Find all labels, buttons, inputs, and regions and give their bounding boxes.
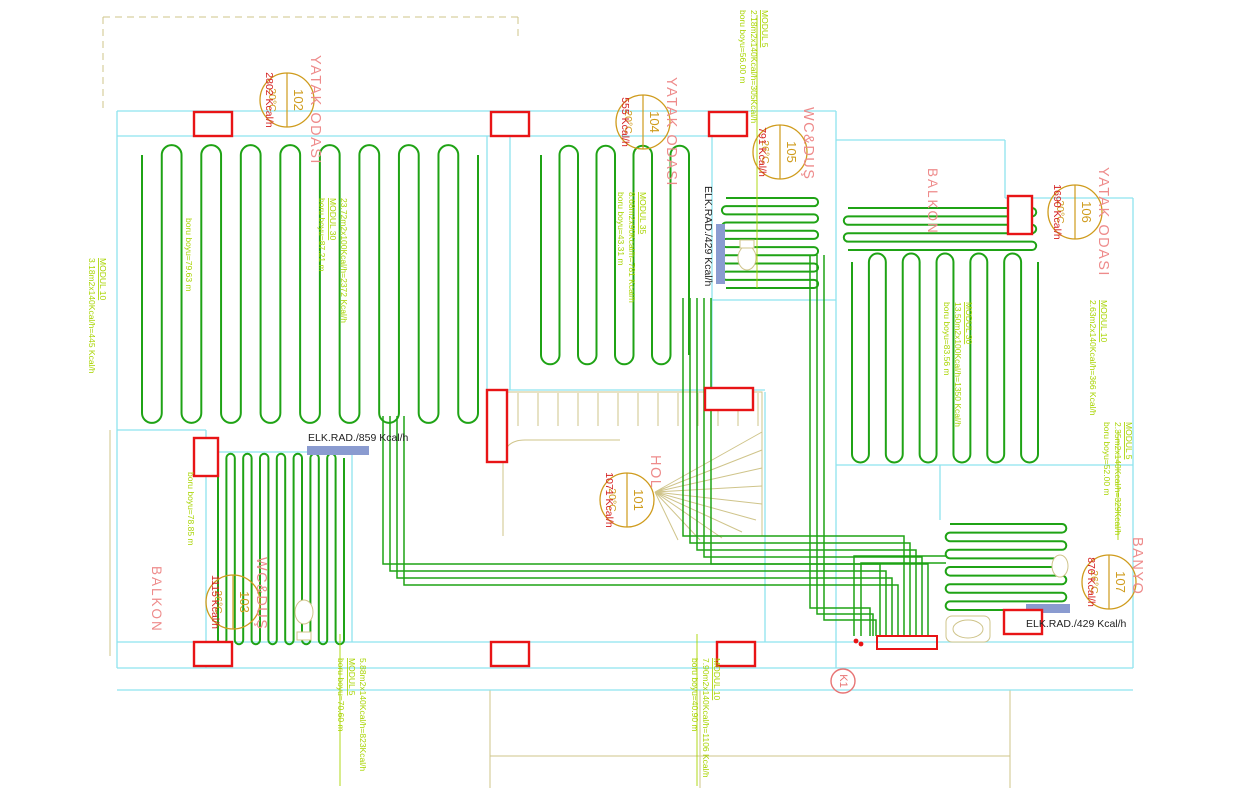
module-annotation-line: MODUL 10	[1099, 300, 1109, 342]
module-annotation-line: MODUL 30	[328, 198, 338, 240]
room-number: 103	[237, 591, 252, 613]
elk-rad-label: ELK.RAD./859 Kcal/h	[308, 432, 409, 444]
room-tag-104: 10420°CYATAK ODASI555 Kcal/h	[616, 77, 679, 187]
bathtub-basin	[953, 620, 983, 638]
room-number: 102	[291, 89, 306, 111]
balcony-label: BALKON	[925, 168, 940, 235]
module-annotation: MODUL 52.35m2x140Kcal/h=329Kcal/hboru bo…	[1102, 422, 1134, 540]
room-number: 104	[647, 111, 662, 133]
module-annotation-line: 5.88m2x140Kcal/h=823Kcal/h	[358, 658, 368, 771]
room-load: 1690 Kcal/h	[1051, 184, 1063, 240]
module-annotation: MODUL 102.63m2x140Kcal/h=366 Kcal/h	[1088, 300, 1109, 416]
window-marker	[487, 390, 507, 462]
pipe-run	[817, 255, 873, 636]
cad-drawing-stage: MODUL 103.18m2x140Kcal/h=445 Kcal/hboru …	[0, 0, 1250, 800]
window-marker	[1008, 196, 1032, 234]
fixtures	[295, 240, 1068, 642]
window-marker	[194, 438, 218, 476]
distributor-label: K1	[837, 674, 849, 687]
module-annotation-line: boru boyu=79.63 m	[184, 218, 194, 291]
module-annotation-line: 13.50m2x100Kcal/h=1350 Kcal/h	[953, 302, 963, 427]
room-tag-103: 10326°CWC&DUŞ1115 Kcal/h	[206, 557, 269, 630]
window-marker	[705, 388, 753, 410]
module-annotation-line: boru boyu=52.00 m	[1102, 422, 1112, 495]
module-annotation-line: boru boyu=43.31 m	[616, 192, 626, 265]
room-number: 106	[1079, 201, 1094, 223]
module-annotation-line: MODUL 10	[98, 258, 108, 300]
module-annotation-line: MODUL 5	[760, 10, 770, 48]
module-annotation-line: boru boyu=87.21 m	[317, 198, 327, 271]
module-annotation-line: boru boyu=40.90 m	[690, 658, 700, 731]
room-load: 791 Kcal/h	[756, 127, 768, 177]
room-load: 870 Kcal/h	[1085, 557, 1097, 607]
module-annotation-line: boru boyu=78.85 m	[186, 472, 196, 545]
room-tag-101: 10120°CHOL1071 Kcal/h	[600, 455, 663, 528]
room-name: YATAK ODASI	[307, 55, 323, 165]
room-load: 1115 Kcal/h	[209, 575, 221, 629]
room-number: 105	[784, 141, 799, 163]
room-tag-107: 10726°CBANYO870 Kcal/h	[1082, 537, 1145, 609]
module-annotation-line: MODUL 5	[347, 658, 357, 696]
room-name: YATAK ODASI	[663, 77, 679, 187]
module-annotation-line: 2.18m2x140Kcal/h=305Kcal/h	[749, 10, 759, 123]
toilet-wc105	[738, 246, 756, 270]
module-annotation: boru boyu=79.63 m	[184, 218, 194, 291]
module-annotation-line: MODUL 30	[964, 302, 974, 344]
room-number: 101	[631, 489, 646, 511]
room-name: BANYO	[1129, 537, 1145, 595]
balcony-label: BALKON	[149, 566, 164, 633]
module-annotation-line: MODUL 10	[712, 658, 722, 700]
heating-coil	[946, 524, 1067, 610]
room-load: 555 Kcal/h	[619, 97, 631, 147]
module-annotation: MODUL 358.68m2x90Kcal/h=781 Kcal/hboru b…	[616, 192, 648, 303]
room-tag-106: 10620°CYATAK ODASI1690 Kcal/h	[1048, 167, 1111, 277]
toilet-wc103	[295, 600, 313, 624]
floor-plan-canvas: MODUL 103.18m2x140Kcal/h=445 Kcal/hboru …	[0, 0, 1250, 800]
module-annotation-line: boru boyu=83.56 m	[942, 302, 952, 375]
stair-fan	[655, 432, 762, 540]
module-annotation: MODUL 103.18m2x140Kcal/h=445 Kcal/h	[87, 258, 108, 374]
valve-dot	[854, 639, 859, 644]
cistern-wc103	[297, 632, 311, 640]
module-annotation: boru boyu=78.85 m	[186, 472, 196, 545]
module-annotation-line: boru boyu=70.60 m	[336, 658, 346, 731]
module-annotation: 5.88m2x140Kcal/h=823Kcal/hMODUL 5boru bo…	[336, 634, 368, 786]
elk-rad-label: ELK.RAD./429 Kcal/h	[1026, 618, 1127, 630]
room-tag-102: 10220°CYATAK ODASI2802 Kcal/h	[260, 55, 323, 165]
elk-radiator	[716, 224, 725, 284]
module-annotation-line: 3.18m2x140Kcal/h=445 Kcal/h	[87, 258, 97, 374]
room-name: HOL	[647, 455, 663, 489]
room-tag-105: 10526°CWC&DUŞ791 Kcal/h	[753, 107, 816, 180]
module-annotation-line: 23.72m2x100Kcal/h=2372 Kcal/h	[339, 198, 349, 323]
stairs-outline	[503, 392, 762, 536]
module-annotation-line: boru boyu=56.00 m	[738, 10, 748, 83]
pipe-run	[854, 556, 946, 636]
window-marker	[491, 112, 529, 136]
room-tags-layer: 10120°CHOL1071 Kcal/h10220°CYATAK ODASI2…	[149, 55, 1145, 633]
window-marker	[194, 642, 232, 666]
module-annotation: MODUL 3013.50m2x100Kcal/h=1350 Kcal/hbor…	[942, 302, 974, 427]
room-load: 2802 Kcal/h	[263, 72, 275, 128]
module-annotation-line: MODUL 35	[638, 192, 648, 234]
room-number: 107	[1113, 571, 1128, 593]
elk-radiator	[307, 446, 369, 455]
annotations-layer: MODUL 103.18m2x140Kcal/h=445 Kcal/hboru …	[87, 10, 1134, 786]
room-name: WC&DUŞ	[800, 107, 816, 180]
window-marker	[491, 642, 529, 666]
heating-coil	[218, 454, 344, 644]
room-name: WC&DUŞ	[253, 557, 269, 630]
window-marker	[194, 112, 232, 136]
elk-rad-label: ELK.RAD./429 Kcal/h	[702, 186, 714, 287]
window-marker	[709, 112, 747, 136]
cistern-wc105	[740, 240, 754, 248]
heating-coil	[722, 198, 818, 288]
toilet-banyo	[1052, 555, 1068, 577]
module-annotation-line: MODUL 5	[1124, 422, 1134, 460]
pipe-run	[390, 416, 886, 636]
room-load: 1071 Kcal/h	[603, 472, 615, 528]
valve-dot	[859, 642, 864, 647]
module-annotation-line: 8.68m2x90Kcal/h=781 Kcal/h	[627, 192, 637, 303]
room-name: YATAK ODASI	[1095, 167, 1111, 277]
module-annotation: 23.72m2x100Kcal/h=2372 Kcal/hMODUL 30bor…	[317, 198, 349, 323]
module-annotation-line: 7.90m2x140Kcal/h=1106 Kcal/h	[701, 658, 711, 778]
module-annotation-line: 2.63m2x140Kcal/h=366 Kcal/h	[1088, 300, 1098, 416]
